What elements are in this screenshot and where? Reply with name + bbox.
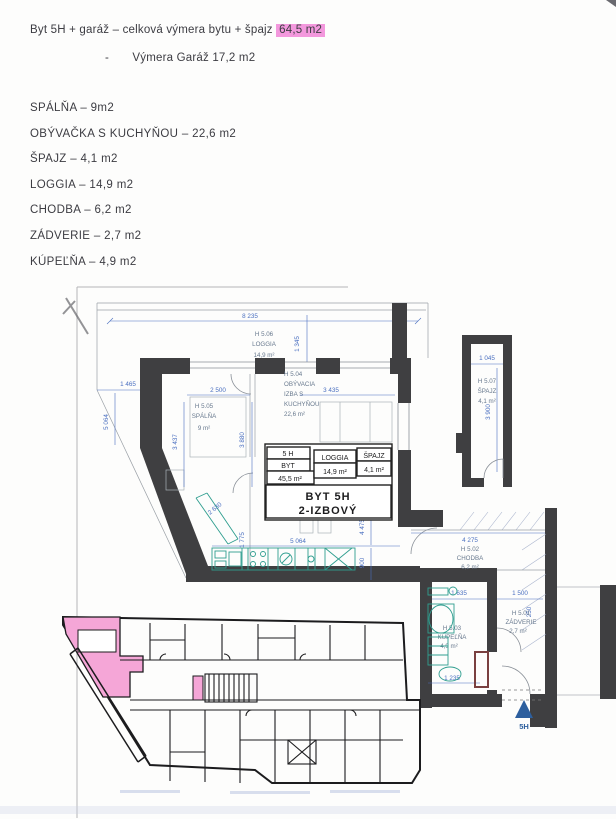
table-title-2: 2-IZBOVÝ [299,504,358,517]
room-name-obyvacka-3: KUCHYŇOU [284,401,319,408]
list-item: ŠPAJZ – 4,1 m2 [30,153,236,179]
list-item: ZÁDVERIE – 2,7 m2 [30,230,236,256]
table-title-1: BYT 5H [305,491,350,503]
dim-5064-left: 5 064 [103,414,110,430]
list-item: CHODBA – 6,2 m2 [30,204,236,230]
dim-900: 900 [359,557,366,568]
table-unit: 5 H [283,451,294,458]
room-code-spajz: H 5.07 [478,378,497,385]
dim-4275: 4 275 [462,537,478,544]
highlighted-area-value: 64,5 m2 [276,24,325,37]
room-name-obyvacka-1: OBÝVACIA [284,381,316,388]
windows [190,362,600,695]
title-text: Byt 5H + garáž – celková výmera bytu + š… [30,24,273,36]
table-byt-area: 45,5 m² [278,476,302,483]
room-code-loggia: H 5.06 [255,331,274,338]
dim-3437: 3 437 [172,434,179,450]
dim-1465: 1 465 [120,381,136,388]
room-code-obyvacka: H 5.04 [284,371,303,378]
list-item: LOGGIA – 14,9 m2 [30,179,236,205]
page-corner-artifact [606,0,616,7]
list-item: OBÝVAČKA S KUCHYŇOU – 22,6 m2 [30,128,236,154]
spajz-room: 1 045 3 900 H 5.07 ŠPAJZ 4,1 m² [471,355,503,478]
room-name-chodba: CHODBA [457,555,484,562]
info-table: 5 H BYT 45,5 m² LOGGIA 14,9 m² ŠPAJZ 4,1… [265,444,392,520]
highlighted-unit-5h [63,617,143,697]
room-area-spalna: 9 m² [198,425,210,432]
room-area-spajz: 4,1 m² [478,398,496,405]
room-name-kupelna: KÚPEĽŇA [438,634,468,641]
room-code-kupelna: H 5.03 [443,625,462,632]
dim-1500: 1 500 [512,590,528,597]
list-item: SPÁLŇA – 9m2 [30,102,236,128]
dim-3900: 3 900 [485,404,492,420]
faint-scan-text [120,790,400,794]
dim-3435: 3 435 [323,387,339,394]
table-spajz-label: ŠPAJZ [363,451,385,460]
table-byt: BYT [281,463,295,470]
list-item: KÚPEĽŇA – 4,9 m2 [30,256,236,282]
room-code-spalna: H 5.05 [195,403,214,410]
document-header: Byt 5H + garáž – celková výmera bytu + š… [30,24,325,64]
door-frame-maroon [475,652,488,687]
dim-1345: 1 345 [294,336,301,352]
dim-4475: 4 475 [359,519,366,535]
table-spajz-value: 4,1 m² [364,467,385,474]
highlighted-spajz [193,676,203,700]
table-loggia-label: LOGGIA [322,455,349,462]
dim-3880: 3 880 [239,432,246,448]
room-name-obyvacka-2: IZBA S [284,391,303,398]
room-name-loggia: LOGGIA [252,341,277,348]
room-area-loggia: 14,9 m² [254,352,275,359]
table-loggia-value: 14,9 m² [323,469,347,476]
scan-scribble [63,298,88,334]
garage-text: Výmera Garáž 17,2 m2 [132,52,255,64]
dim-1775: 1 775 [239,532,246,548]
room-code-zadverie: H 5.01 [512,610,531,617]
room-name-zadverie: ZÁDVERIE [506,619,537,626]
scanned-document-page: { "page": { "header": { "line1_prefix": … [0,0,616,819]
floor-plan-drawing: 8 235 1 345 H 5.06 LOGGIA 14,9 m² 1 465 … [0,282,616,819]
scan-streak [0,806,616,814]
dim-8235: 8 235 [242,313,258,320]
room-code-chodba: H 5.02 [461,546,480,553]
dim-1045: 1 045 [479,355,495,362]
entrance-label: 5H [519,722,529,731]
dim-2500: 2 500 [210,387,226,394]
room-area-kupelna: 4,9 m² [440,643,458,650]
bullet-dash: - [105,52,129,64]
room-area-obyvacka: 22,6 m² [284,411,305,418]
dim-5064-kitchen: 5 064 [290,538,306,545]
room-area-list: SPÁLŇA – 9m2 OBÝVAČKA S KUCHYŇOU – 22,6 … [30,102,236,281]
room-area-chodba: 6,2 m² [461,564,479,571]
dim-1635: 1 635 [451,590,467,597]
room-name-spajz: ŠPAJZ [478,388,497,395]
garage-line: - Výmera Garáž 17,2 m2 [30,52,325,64]
room-area-zadverie: 2,7 m² [509,628,527,635]
room-name-spalna: SPÁLŇA [192,413,217,420]
title-line: Byt 5H + garáž – celková výmera bytu + š… [30,24,325,36]
